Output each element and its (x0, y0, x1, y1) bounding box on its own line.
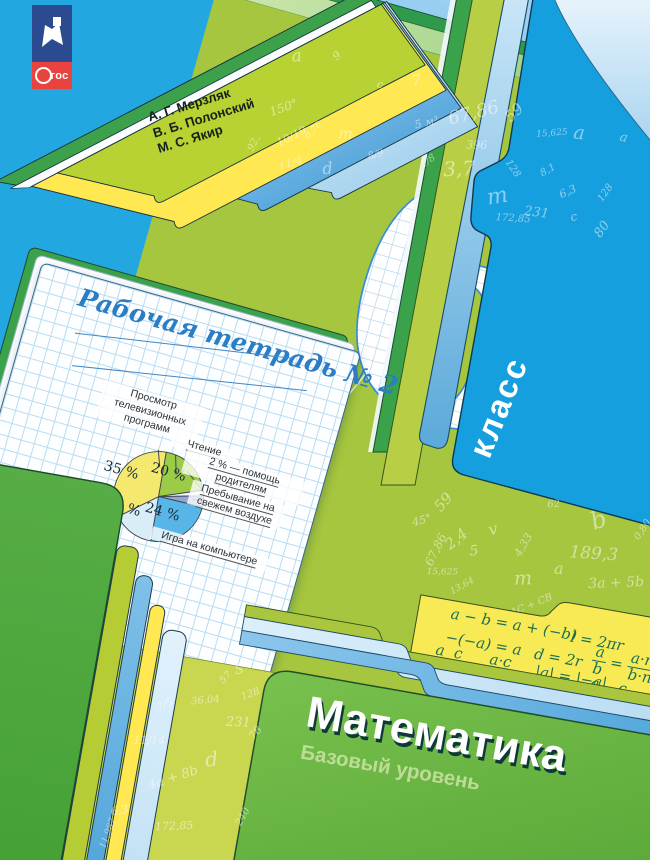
fgos-badge: гос (32, 62, 72, 89)
publisher-logo (32, 5, 72, 62)
fgos-text: гос (50, 70, 68, 82)
prosveshchenie-book-icon (32, 5, 72, 62)
book-cover: 6 a9150°0,76m8/9c75 м³1/867,86396591283,… (0, 0, 650, 860)
